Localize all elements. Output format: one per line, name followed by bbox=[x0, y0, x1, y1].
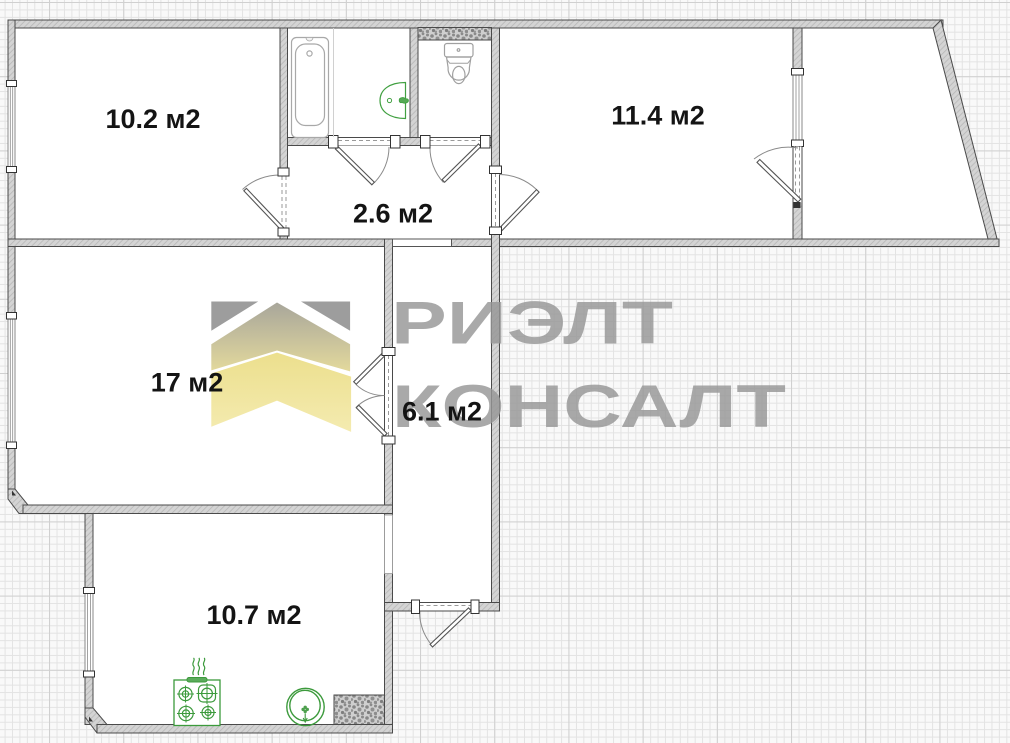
svg-text:РИЭЛТ: РИЭЛТ bbox=[391, 290, 673, 357]
svg-text:2.6 м2: 2.6 м2 bbox=[353, 199, 433, 229]
svg-text:10.2 м2: 10.2 м2 bbox=[105, 104, 200, 134]
svg-text:6.1 м2: 6.1 м2 bbox=[402, 397, 482, 427]
svg-text:17 м2: 17 м2 bbox=[151, 368, 224, 398]
svg-text:10.7 м2: 10.7 м2 bbox=[206, 600, 301, 630]
svg-text:11.4 м2: 11.4 м2 bbox=[611, 101, 705, 131]
